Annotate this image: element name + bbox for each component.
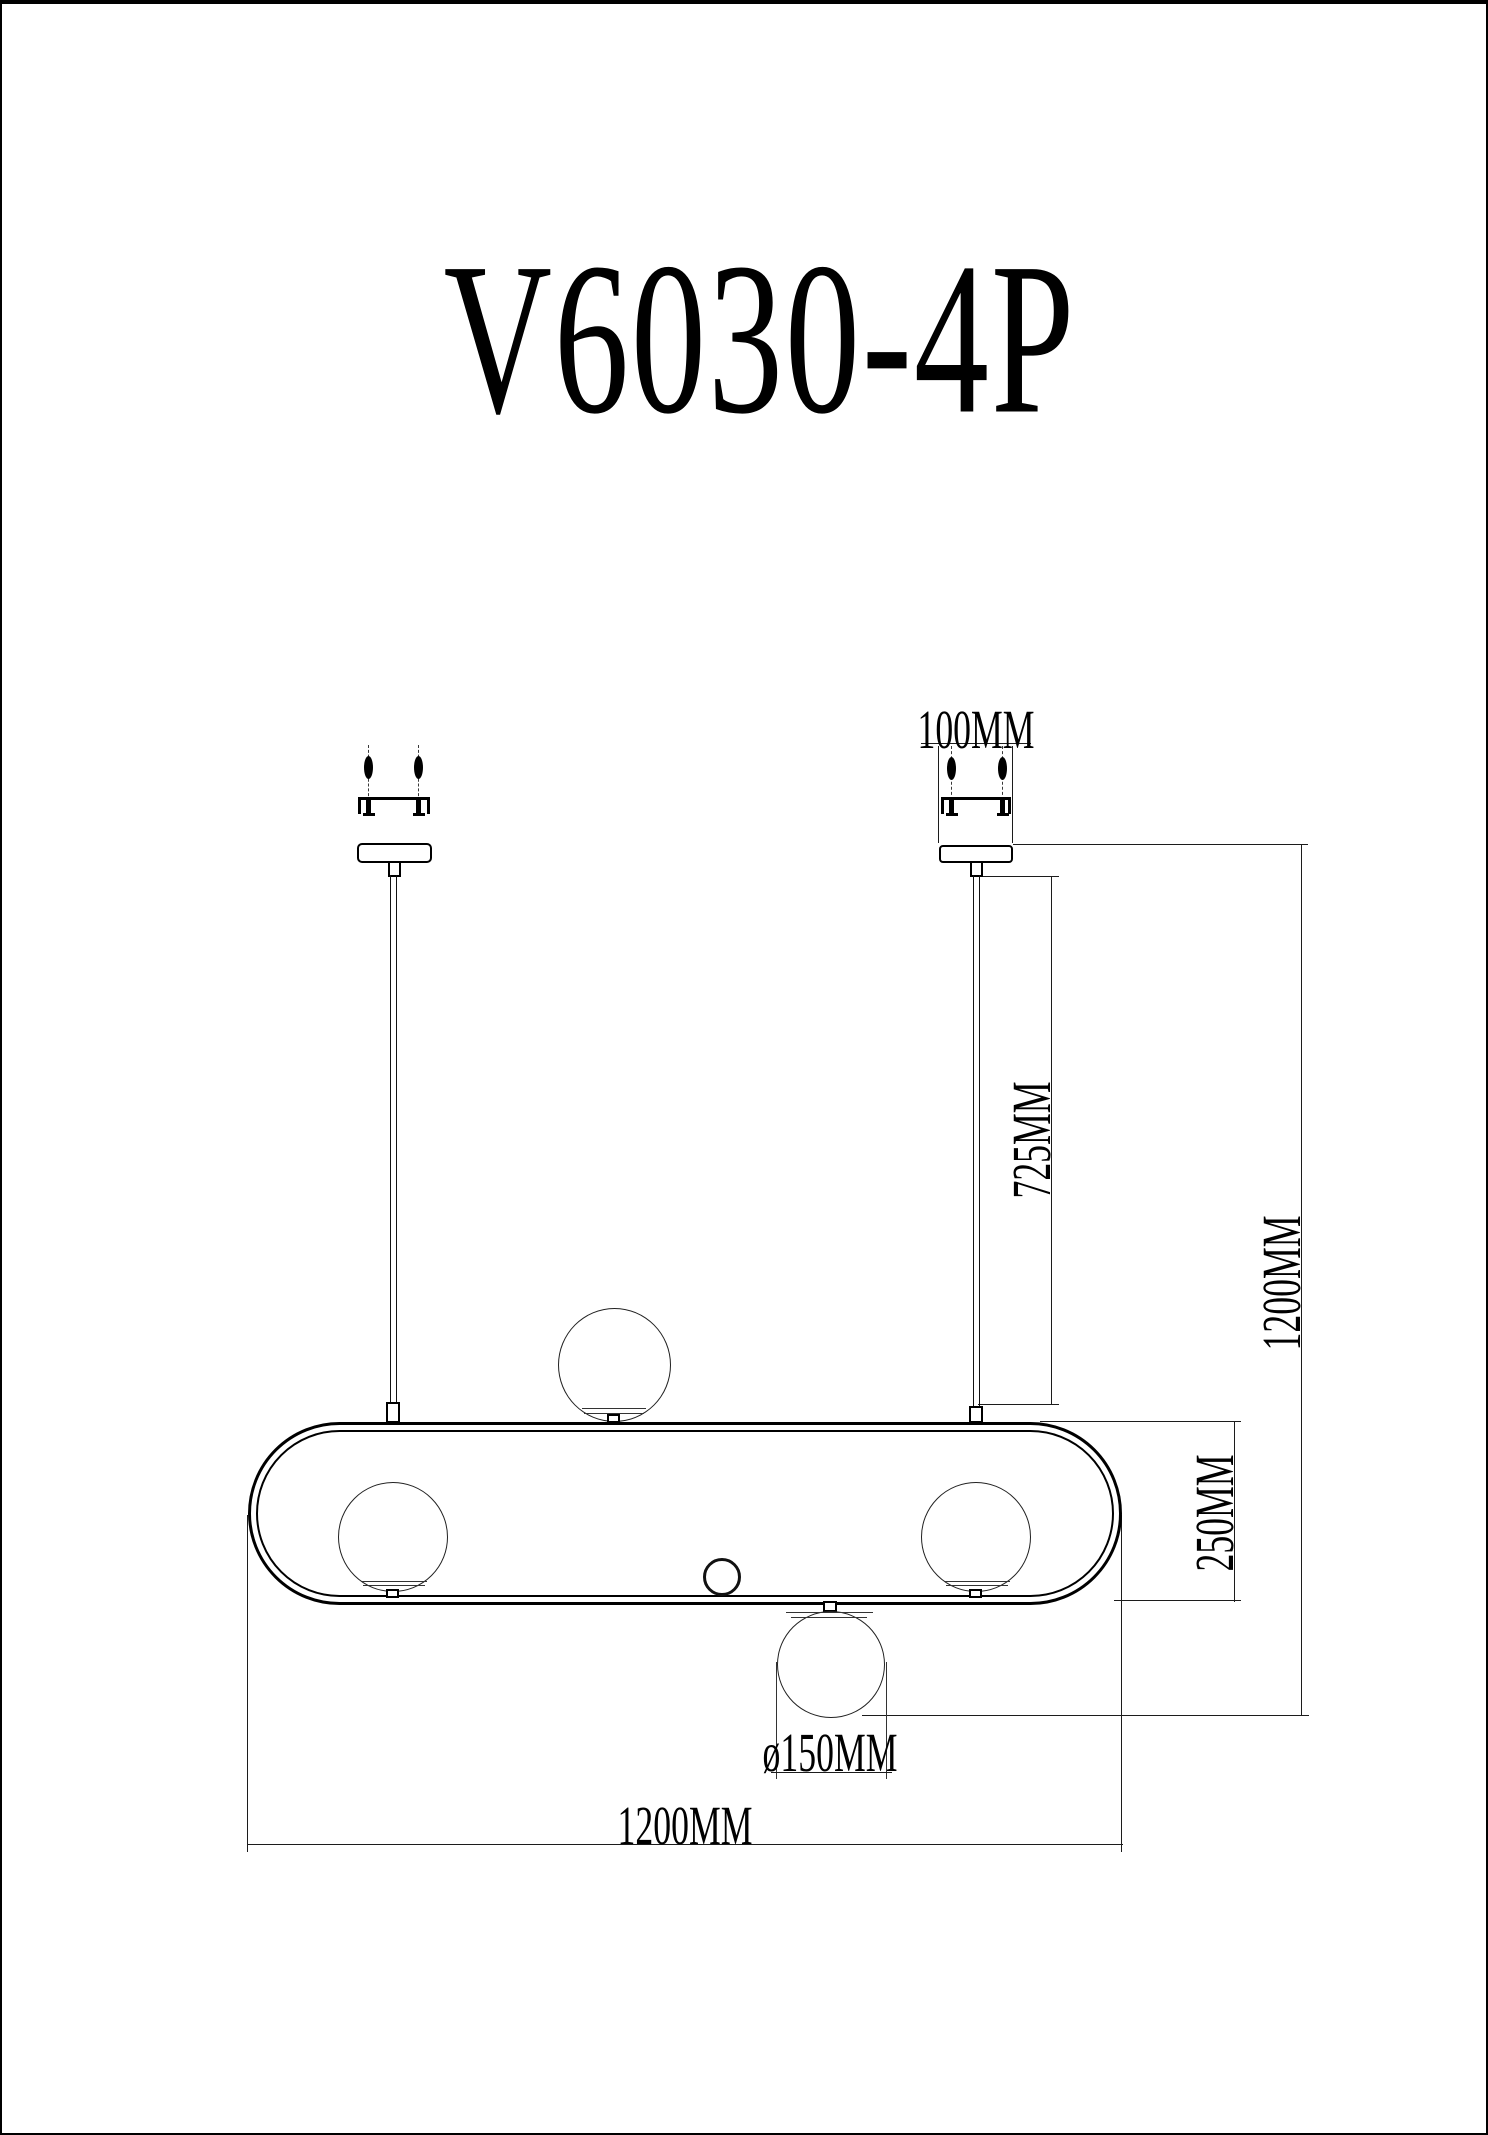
left-screw1-shaft [366,800,371,814]
dim-725mm-ext-top [983,876,1059,877]
right-bracket-hook-left [941,797,944,814]
model-number: V6030-4P [444,214,1077,463]
dim-100mm-label: 100MM [917,700,1034,762]
dim-250mm-ext-bottom [1114,1600,1241,1601]
right-screw2-foot [997,813,1009,816]
small-ball [703,1558,741,1596]
right-screw1-shaft [949,800,954,814]
right-rod-connector [969,1406,983,1423]
dim-150mm-label: ø150MM [763,1723,898,1785]
bottom-globe-top-line1 [786,1612,873,1613]
left-bracket-hook-left [358,797,361,814]
dim-725mm-label: 725MM [1002,1081,1064,1198]
left-globe-shade [338,1482,448,1592]
left-screw1-anchor [364,756,373,779]
dim-250mm-label: 250MM [1185,1454,1247,1571]
dim-1200mm-height-label: 1200MM [1252,1216,1314,1351]
drawing-page: V6030-4P 100MM 725MM 1200MM 250MM ø150MM… [0,0,1488,2135]
right-globe-connector [969,1589,982,1598]
right-screw2-anchor [998,757,1007,780]
right-globe-base-line1 [944,1581,1010,1582]
left-suspension-rod [390,875,397,1404]
dim-1200mm-height-ext-top [1013,844,1308,845]
left-globe-connector [386,1589,399,1598]
right-globe-shade [921,1482,1031,1592]
top-globe-shade [558,1308,671,1422]
right-screw1-anchor [947,757,956,780]
bottom-globe-top-line2 [791,1617,867,1618]
left-screw2-anchor [414,756,423,779]
dim-250mm-ext-top [1040,1421,1241,1422]
right-screw1-foot [946,813,958,816]
left-screw2-foot [413,813,425,816]
left-rod-connector [386,1402,400,1423]
left-screw1-foot [363,813,375,816]
right-globe-base-line2 [946,1585,1008,1586]
left-globe-base-line2 [363,1585,425,1586]
dim-1200mm-width-label: 1200MM [618,1796,753,1858]
left-screw2-shaft [416,800,421,814]
dim-725mm-ext-bottom [978,1404,1059,1405]
right-suspension-rod [973,875,980,1407]
top-globe-connector [607,1414,620,1423]
right-screw2-shaft [1000,800,1005,814]
dim-1200mm-width-ext-right [1121,1515,1122,1852]
right-bracket-hook-right [1008,797,1011,814]
left-canopy [357,843,432,863]
dim-1200mm-height-ext-bottom [862,1715,1309,1716]
dim-1200mm-width-ext-left [247,1515,248,1852]
left-globe-base-line1 [361,1581,427,1582]
top-globe-base-line1 [582,1408,646,1409]
bottom-globe-shade [777,1611,885,1718]
left-bracket-hook-right [427,797,430,814]
